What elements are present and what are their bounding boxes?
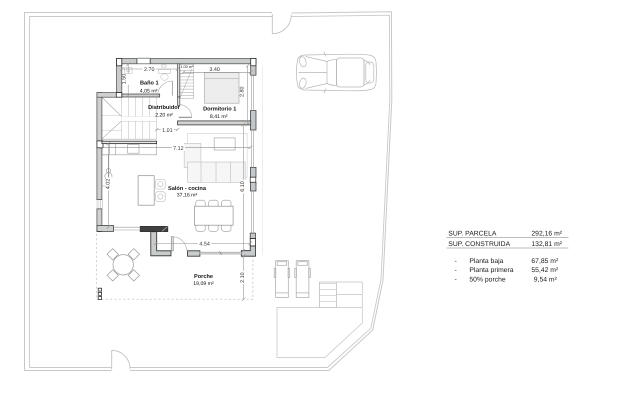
svg-text:Planta primera: Planta primera: [469, 267, 513, 274]
svg-text:2.70: 2.70: [144, 67, 155, 73]
svg-text:6.10: 6.10: [240, 181, 246, 192]
svg-text:19,09 m²: 19,09 m²: [193, 281, 214, 287]
svg-text:132,81 m²: 132,81 m²: [531, 241, 562, 248]
svg-text:Salón - cocina: Salón - cocina: [168, 185, 207, 192]
svg-text:2.80: 2.80: [239, 86, 245, 97]
svg-text:50% porche: 50% porche: [469, 277, 505, 284]
svg-text:SUP. PARCELA: SUP. PARCELA: [448, 230, 497, 237]
svg-text:-: -: [455, 277, 457, 284]
svg-text:4,05 m²: 4,05 m²: [140, 88, 158, 94]
svg-text:8,41 m²: 8,41 m²: [210, 114, 228, 120]
svg-text:4.02: 4.02: [105, 179, 111, 190]
svg-text:55,42 m²: 55,42 m²: [531, 267, 559, 274]
svg-text:Baño 1: Baño 1: [140, 80, 159, 87]
svg-text:Planta baja: Planta baja: [469, 258, 503, 265]
svg-text:292,16 m²: 292,16 m²: [531, 230, 562, 237]
svg-text:4.54: 4.54: [199, 242, 210, 248]
svg-text:Porche: Porche: [194, 273, 213, 280]
svg-text:2,20 m²: 2,20 m²: [155, 112, 173, 118]
svg-text:1.00 m²: 1.00 m²: [180, 65, 194, 69]
svg-text:1.50: 1.50: [122, 74, 128, 85]
svg-text:67,85 m²: 67,85 m²: [531, 258, 559, 265]
svg-text:9,54 m²: 9,54 m²: [534, 277, 558, 284]
svg-text:-: -: [455, 258, 457, 265]
svg-text:3.40: 3.40: [209, 67, 220, 73]
svg-text:2.10: 2.10: [240, 272, 246, 283]
svg-text:7.12: 7.12: [173, 146, 184, 152]
svg-text:-: -: [455, 267, 457, 274]
svg-text:37,16 m²: 37,16 m²: [177, 193, 198, 199]
svg-text:Dormitorio 1: Dormitorio 1: [203, 105, 236, 112]
svg-text:1.01: 1.01: [162, 128, 173, 134]
svg-text:Distribuidor: Distribuidor: [148, 104, 181, 111]
svg-text:SUP. CONSTRUIDA: SUP. CONSTRUIDA: [448, 241, 510, 248]
